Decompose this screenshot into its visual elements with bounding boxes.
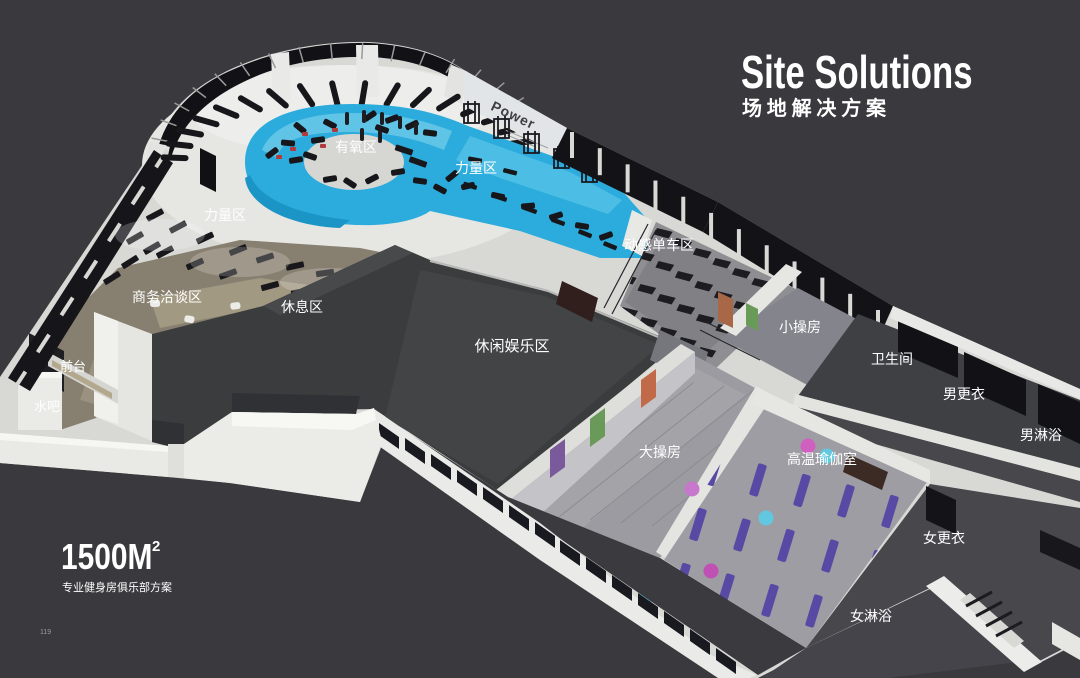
svg-text:专业健身房俱乐部方案: 专业健身房俱乐部方案 xyxy=(62,580,172,594)
svg-text:场地解决方案: 场地解决方案 xyxy=(742,96,891,120)
svg-text:男更衣: 男更衣 xyxy=(943,386,985,402)
svg-text:力量区: 力量区 xyxy=(455,160,497,176)
svg-text:2: 2 xyxy=(152,538,160,555)
svg-text:水吧: 水吧 xyxy=(34,399,60,414)
svg-text:男淋浴: 男淋浴 xyxy=(1020,427,1062,443)
svg-text:前台: 前台 xyxy=(60,359,86,374)
svg-text:商务洽谈区: 商务洽谈区 xyxy=(132,289,202,305)
svg-text:高温瑜伽室: 高温瑜伽室 xyxy=(787,451,857,467)
svg-text:有氧区: 有氧区 xyxy=(335,139,377,155)
svg-text:女淋浴: 女淋浴 xyxy=(850,608,892,624)
svg-text:卫生间: 卫生间 xyxy=(871,351,913,367)
svg-text:休闲娱乐区: 休闲娱乐区 xyxy=(474,338,549,355)
svg-text:大操房: 大操房 xyxy=(639,444,681,460)
svg-text:1500M: 1500M xyxy=(61,537,152,577)
svg-text:Site Solutions: Site Solutions xyxy=(741,46,973,98)
svg-text:小操房: 小操房 xyxy=(779,319,821,335)
svg-text:力量区: 力量区 xyxy=(204,207,246,223)
svg-text:休息区: 休息区 xyxy=(281,299,323,315)
svg-text:动感单车区: 动感单车区 xyxy=(624,237,694,253)
svg-text:女更衣: 女更衣 xyxy=(923,530,965,546)
svg-text:119: 119 xyxy=(40,629,51,636)
